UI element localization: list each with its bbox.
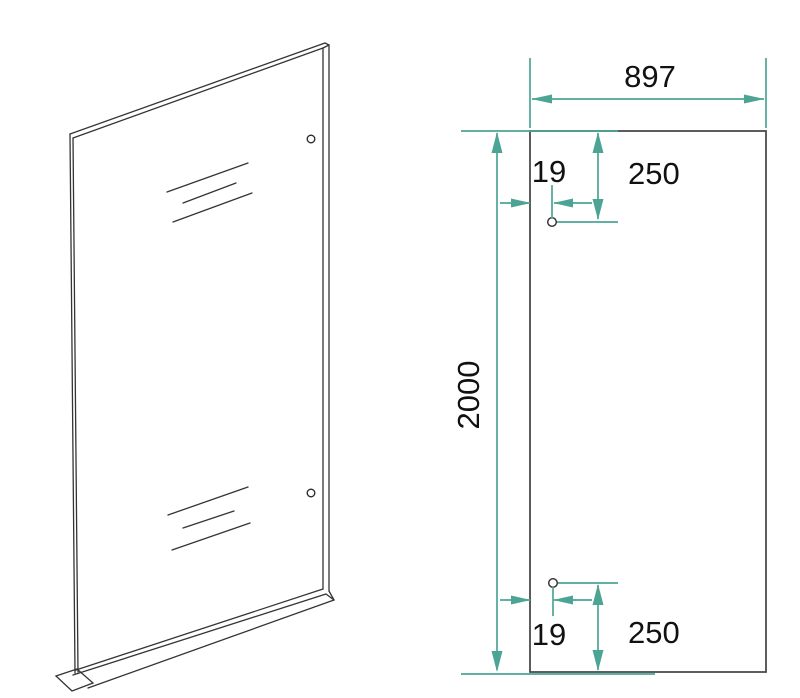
arrowhead-down [492, 651, 503, 672]
rail-top-front-edge [73, 594, 326, 675]
perspective-view [56, 43, 334, 691]
dim-top-hole: 19 250 [500, 132, 680, 226]
arrowhead-left [531, 95, 552, 104]
glass-top-edge-inner [73, 48, 323, 138]
reflection-line [173, 193, 252, 222]
rail-bottom-front-edge [88, 600, 334, 688]
reflection-line [183, 511, 234, 528]
bottom-hole-inset-label: 19 [532, 617, 566, 652]
mount-hole-bottom [307, 489, 315, 497]
dim-bottom-hole: 19 250 [500, 579, 680, 671]
arrowhead-left [553, 199, 573, 208]
mount-hole-bottom-front [549, 579, 558, 588]
bottom-rail [56, 589, 334, 691]
reflection-line [172, 523, 250, 550]
width-dimension-label: 897 [624, 59, 676, 94]
arrowhead-up [593, 584, 604, 605]
technical-drawing-canvas: 897 2000 19 250 [0, 0, 800, 698]
mount-hole-top [307, 135, 315, 143]
arrowhead-down [593, 199, 604, 220]
arrowhead-left [553, 596, 573, 605]
reflection-line [167, 163, 248, 192]
reflection-line [183, 183, 236, 203]
glass-top-edge-outer [70, 43, 325, 134]
rail-top-back-edge [76, 589, 323, 670]
mount-hole-top-front [548, 218, 557, 227]
arrowhead-right [744, 95, 765, 104]
arrowhead-right [511, 199, 531, 208]
bottom-hole-rise-label: 250 [628, 615, 680, 650]
top-hole-inset-label: 19 [532, 154, 566, 189]
reflection-hatch-lower [168, 487, 250, 550]
height-dimension-label: 2000 [451, 361, 486, 430]
arrowhead-down [593, 650, 604, 671]
arrowhead-up [593, 132, 604, 153]
arrowhead-right [511, 596, 531, 605]
reflection-line [168, 487, 248, 515]
glass-top-right-cap-b [323, 45, 329, 48]
panel-outline [530, 131, 766, 672]
front-view: 897 2000 19 250 [451, 58, 766, 674]
reflection-hatch-upper [167, 163, 252, 222]
arrowhead-up [492, 132, 503, 153]
top-hole-drop-label: 250 [628, 156, 680, 191]
dim-width: 897 [530, 58, 766, 128]
